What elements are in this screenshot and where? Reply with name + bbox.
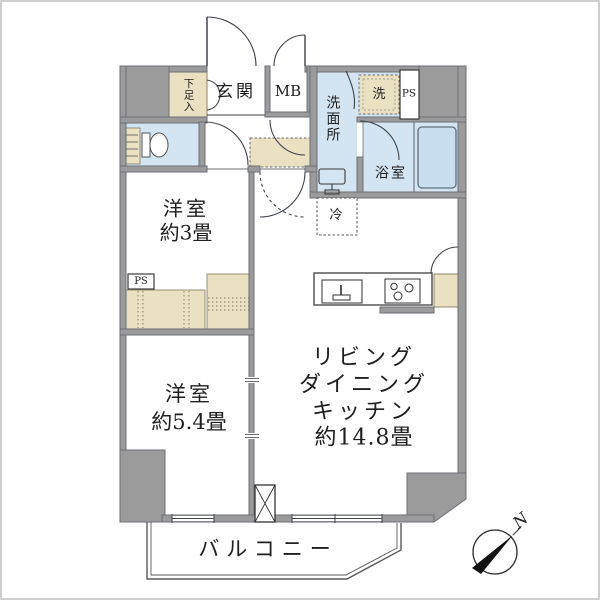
- toilet-door-arc: [205, 122, 248, 165]
- label-balcony: バルコニー: [198, 538, 338, 560]
- closet-left: [124, 290, 205, 329]
- label-mb: MB: [275, 84, 301, 100]
- wall-left: [120, 66, 126, 450]
- entrance-door-arc: [207, 17, 256, 66]
- compass: [472, 527, 521, 574]
- label-bathroom: 浴室: [375, 167, 407, 182]
- ldk-entry-door-arc: [260, 172, 305, 217]
- wall-washroom-west: [310, 66, 317, 198]
- label-room54-size: 約5.4畳: [151, 411, 226, 433]
- wall-kitchen-stub: [380, 307, 434, 313]
- wall-bath-west: [357, 157, 363, 197]
- label-ldk-line3: キッチン: [312, 400, 416, 423]
- label-shoebox: 下足入: [182, 78, 193, 113]
- kitchen-pantry: [434, 274, 458, 307]
- wall-block-bottomleft: [120, 450, 165, 522]
- pantry-door-arc: [431, 247, 458, 274]
- hall-storage: [250, 138, 312, 167]
- label-fridge: 冷: [329, 209, 342, 223]
- wall-center-vertical: [249, 172, 254, 515]
- wall-hall-bottom-b: [248, 166, 260, 172]
- floorplan-canvas: 玄関 下足入 MB 洗面所 洗 PS 浴室 冷 洋室 約3畳 PS 洋室 約5.…: [0, 0, 600, 600]
- wall-right: [458, 66, 466, 473]
- label-ldk-line2: ダイニング: [299, 373, 429, 396]
- balcony-pillar: [255, 485, 275, 522]
- label-room54-name: 洋室: [165, 383, 213, 405]
- wall-mb-left: [265, 66, 270, 117]
- label-ldk-line1: リビング: [312, 346, 416, 369]
- wall-washroom-bottom: [310, 192, 466, 198]
- wall-hall-bottom-a: [120, 166, 207, 172]
- wall-block-topleft: [120, 66, 169, 120]
- wall-toilet-right: [199, 122, 205, 166]
- wall-below-entrance: [120, 117, 207, 123]
- label-ps-top: PS: [402, 88, 416, 99]
- kitchen: [314, 273, 432, 305]
- bathtub-icon: [418, 127, 456, 188]
- mb-door-arc: [274, 35, 305, 66]
- label-room3-size: 約3畳: [160, 223, 213, 244]
- label-washer: 洗: [372, 88, 385, 102]
- closet-right: [207, 274, 254, 329]
- label-genkan: 玄関: [216, 84, 256, 102]
- label-washroom: 洗面所: [325, 95, 340, 143]
- wall-closet-bottom: [120, 329, 254, 335]
- ldk-entry-door-arc-dashed: [260, 172, 305, 217]
- label-ps-left: PS: [134, 277, 148, 288]
- stove-icon: [385, 279, 420, 303]
- label-room3-name: 洋室: [163, 199, 209, 220]
- wall-mb-bottom: [265, 112, 312, 117]
- wall-hall-bottom-c: [305, 166, 317, 172]
- label-ldk-size: 約14.8畳: [315, 426, 414, 449]
